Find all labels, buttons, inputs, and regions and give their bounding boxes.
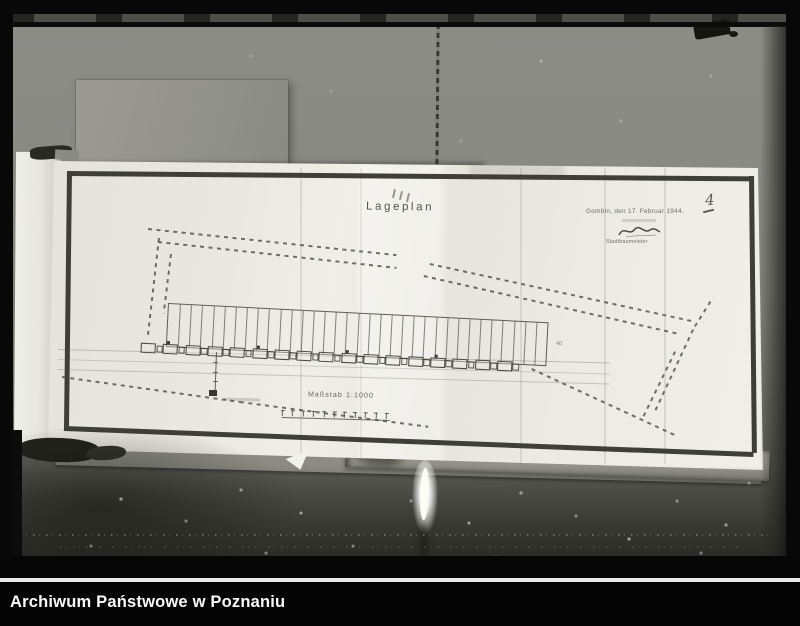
page-number-underline [703,209,714,213]
scale-tick [292,410,293,416]
archive-caption: Archiwum Państwowe w Poznaniu [10,593,285,612]
chimney-mark [345,350,348,353]
parcel-line [523,322,526,364]
parcel-line [534,323,537,365]
faint-subtext [622,219,656,222]
photo-border-right [786,0,800,626]
parcel-line [412,316,415,358]
road-dashed [147,238,160,339]
building-rect [163,344,178,354]
scale-tick [313,411,314,417]
building-rect [252,348,267,358]
scale-tick [323,411,324,417]
parcel-line [278,310,281,352]
parcel-line [445,318,448,360]
scale-tick [375,413,376,419]
parcel-line [222,307,225,349]
cover-board [76,80,288,166]
torn-paper-top-2 [55,149,79,160]
parcel-line [389,315,392,357]
parcel-line [456,319,459,361]
parcel-line [434,318,437,360]
parcel-line [501,321,504,363]
paper-fold [520,168,522,464]
signatory-title: Stadtbaumeister [606,239,648,245]
parcel-line [323,312,326,354]
building-rect [185,345,200,355]
outbuilding-rect [201,348,208,355]
page-number: 4 [704,191,715,210]
outbuilding-rect [290,352,297,359]
connector-tick [213,372,218,373]
parcel-line [367,314,370,356]
outbuilding-rect [468,361,475,368]
building-rect [274,349,289,359]
parcel-strip [166,303,549,366]
parcel-line [189,305,192,347]
outbuilding-rect [312,353,319,360]
parcel-line [312,311,315,353]
parcel-line [300,311,303,353]
outbuilding-rect [512,364,519,371]
connector-tick [213,362,218,363]
parcel-line [289,310,292,352]
chimney-mark [167,341,170,344]
building-rect [430,357,445,367]
parcel-line [345,313,348,355]
connector-tick [213,381,218,382]
outbuilding-rect [356,356,363,363]
parcel-line [490,320,493,362]
building-rect [385,355,400,365]
scale-tick [355,412,356,418]
parcel-line [512,322,515,364]
shadow-lower-left [13,425,303,560]
parcel-line [378,315,381,357]
outbuilding-rect [245,350,252,357]
building-row [140,340,546,375]
scale-tick [386,413,387,419]
parcel-line [234,307,237,349]
outbuilding-rect [423,359,430,366]
parcel-line [479,320,482,362]
parcel-line [356,314,359,356]
scale-bar [282,408,390,421]
parcel-line [256,309,259,351]
plan-date-line: Gombin, den 17. Februar 1944. [586,208,684,215]
parcel-line [211,306,214,348]
scale-tick [334,411,335,417]
outbuilding-rect [334,354,341,361]
sliver-shadow [419,524,428,560]
building-rect [408,356,423,366]
photo-border-left [0,0,13,626]
chimney-mark [434,355,437,358]
plan-title: Lageplan [366,201,434,214]
road-dashed [430,263,692,322]
photo-border-top-inner [0,22,800,27]
road-dashed [641,351,676,420]
parcel-line [267,309,270,351]
outbuilding-rect [156,345,163,352]
road-dashed [654,329,694,411]
chimney-mark [256,346,259,349]
parcel-line [200,306,203,348]
building-rect [341,353,356,363]
caption-bar: Archiwum Państwowe w Poznaniu [0,582,800,626]
scale-tick [365,412,366,418]
scale-label: Maßstab 1:1000 [308,391,374,399]
parcel-line [178,305,181,347]
photo-right-shade [760,26,787,558]
parcel-line [423,317,426,359]
signature-scribble [616,223,662,239]
building-rect [296,351,311,361]
parcel-line [334,313,337,355]
parcel-line [467,319,470,361]
top-edge-streak [8,14,790,22]
parcel-end-label: 40 [556,341,562,347]
well-symbol [209,390,217,396]
plan-frame-right [749,176,757,453]
scale-tick [282,410,283,416]
parcel-line [245,308,248,350]
building-rect [363,354,378,364]
building-rect [452,358,467,368]
plan-frame-left [64,171,72,428]
archival-photo: Lageplan Gombin, den 17. Februar 1944. S… [0,0,800,626]
sparkle-row [20,534,770,536]
parcel-line [401,316,404,358]
outbuilding-rect [178,347,185,354]
scale-tick [303,411,304,417]
building-rect [475,360,490,370]
sparkle-row-2 [60,546,740,548]
building-rect [319,352,334,362]
building-rect [140,343,155,353]
scale-tick [344,412,345,418]
photo-border-left-lower [13,430,22,556]
building-rect [230,347,245,357]
photo-border-top [0,0,800,14]
building-rect [497,361,512,371]
road-dashed [694,297,713,327]
dark-blot-small [729,31,738,37]
outbuilding-rect [446,360,453,367]
